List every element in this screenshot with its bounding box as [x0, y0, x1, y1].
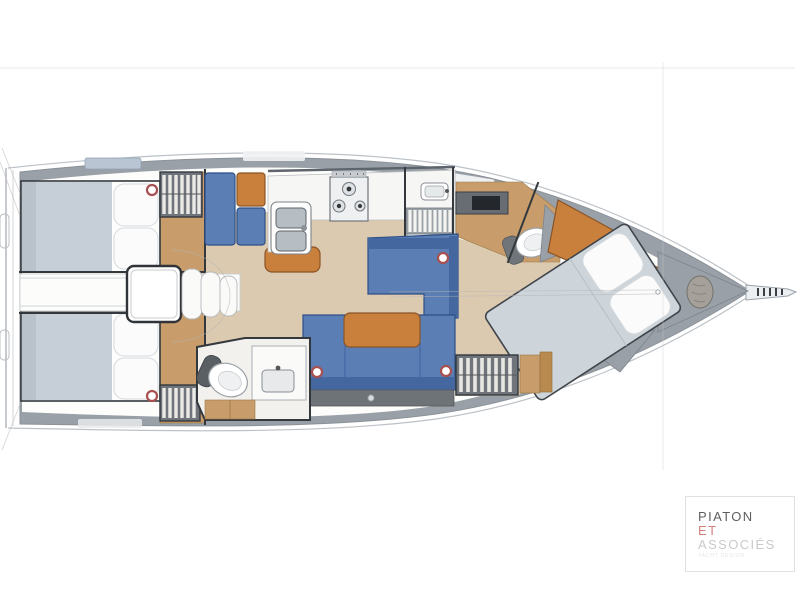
settee-backrest: [449, 236, 458, 318]
hull-locker-strip: [306, 390, 454, 406]
entry-step-2: [540, 352, 552, 392]
boat-floorplan-page: PIATON ET ASSOCIÉS YACHT DESIGN: [0, 0, 800, 600]
logo-line-1: PIATON: [698, 510, 794, 524]
locker-latch: [368, 395, 374, 401]
burner-center: [347, 187, 352, 192]
corner-cabinet: [237, 173, 265, 206]
entry-step: [520, 355, 540, 393]
logo-tagline: YACHT DESIGN: [698, 554, 794, 559]
speaker-marker: [441, 366, 451, 376]
sofa-backrest: [303, 377, 455, 390]
speaker-marker: [312, 367, 322, 377]
companionway-landing: [127, 266, 181, 322]
bowsprit: [746, 285, 796, 300]
floorplan-drawing: [0, 0, 800, 600]
step-3: [220, 276, 237, 316]
speaker-marker: [438, 253, 448, 263]
aft-head: [194, 338, 310, 420]
settee-backrest: [368, 238, 458, 249]
backstay-line-2: [0, 162, 20, 216]
faucet: [445, 189, 449, 193]
logo-line-3: ASSOCIÉS: [698, 538, 794, 552]
transom-locker: [0, 330, 9, 360]
designer-logo: PIATON ET ASSOCIÉS YACHT DESIGN: [685, 496, 795, 572]
mattress-shadow: [22, 182, 36, 271]
anchor-bag: [687, 276, 713, 308]
coachroof-hatch: [243, 151, 305, 161]
mattress-shadow: [22, 312, 36, 400]
saloon-table: [344, 313, 420, 347]
stove: [330, 171, 368, 221]
swim-ladder: [0, 214, 9, 248]
seat-cushion: [237, 208, 265, 245]
washbasin: [262, 370, 294, 392]
washbasin-bowl: [425, 186, 444, 197]
burner-center: [337, 204, 341, 208]
main-sofa: [303, 313, 455, 406]
logo-line-2: ET: [698, 524, 794, 538]
aft-cabin-port: [20, 170, 205, 272]
chaise-seat: [205, 173, 235, 245]
step-2: [201, 272, 220, 317]
vanity-sink: [472, 196, 500, 210]
sink-bowl-1: [276, 208, 306, 228]
sink-bowl-2: [276, 231, 306, 251]
grate-slats: [410, 210, 450, 232]
faucet: [301, 225, 307, 231]
step-1: [182, 269, 202, 319]
bag-body: [687, 276, 713, 308]
stove-controls: [332, 171, 366, 177]
speaker-marker: [147, 391, 157, 401]
speaker-marker: [147, 185, 157, 195]
forward-wardrobe: [456, 352, 552, 395]
deck-hatch-starboard: [78, 419, 142, 428]
deck-hatch-port: [85, 158, 141, 169]
burner-center: [358, 204, 362, 208]
faucet: [276, 366, 281, 371]
pillow: [114, 228, 158, 269]
